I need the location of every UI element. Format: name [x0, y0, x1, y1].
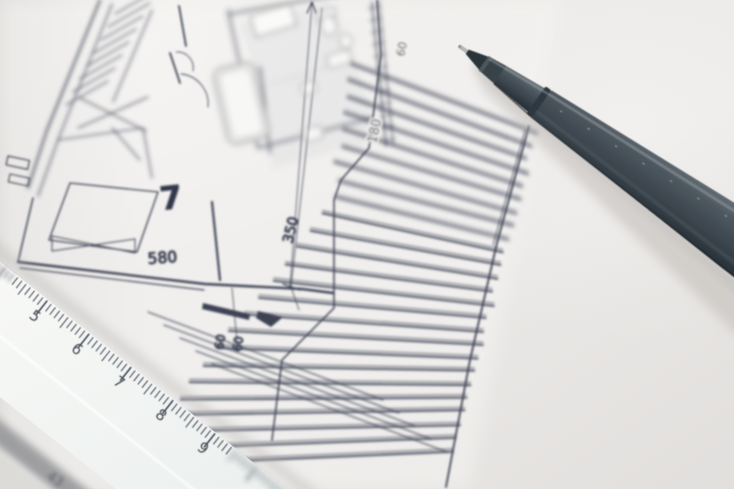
dimension-60-label: 60 [230, 335, 246, 352]
blueprint-photo: 7 580 350 180 60 60 60 4 5 6 [0, 0, 734, 489]
dimension-60-label: 60 [393, 40, 410, 57]
room-number-label: 7 [158, 178, 184, 218]
dimension-60-label: 60 [212, 333, 228, 350]
dimension-580-label: 580 [147, 248, 178, 268]
